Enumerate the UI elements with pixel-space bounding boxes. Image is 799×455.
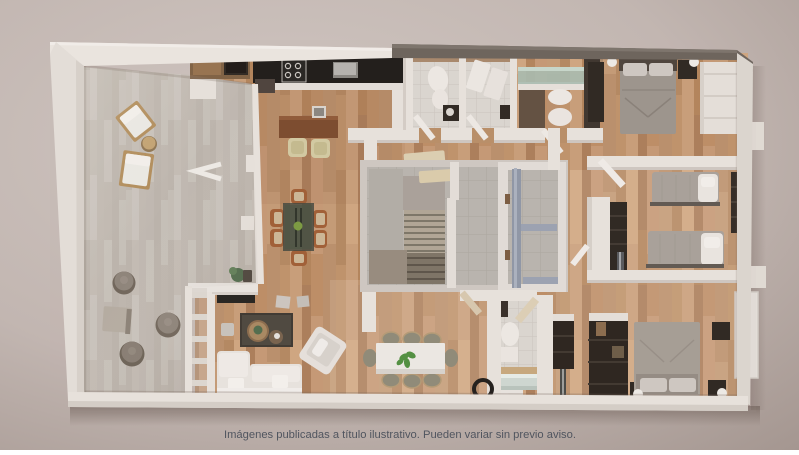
svg-text:Imágenes publicadas a título i: Imágenes publicadas a título ilustrativo… — [224, 429, 576, 441]
